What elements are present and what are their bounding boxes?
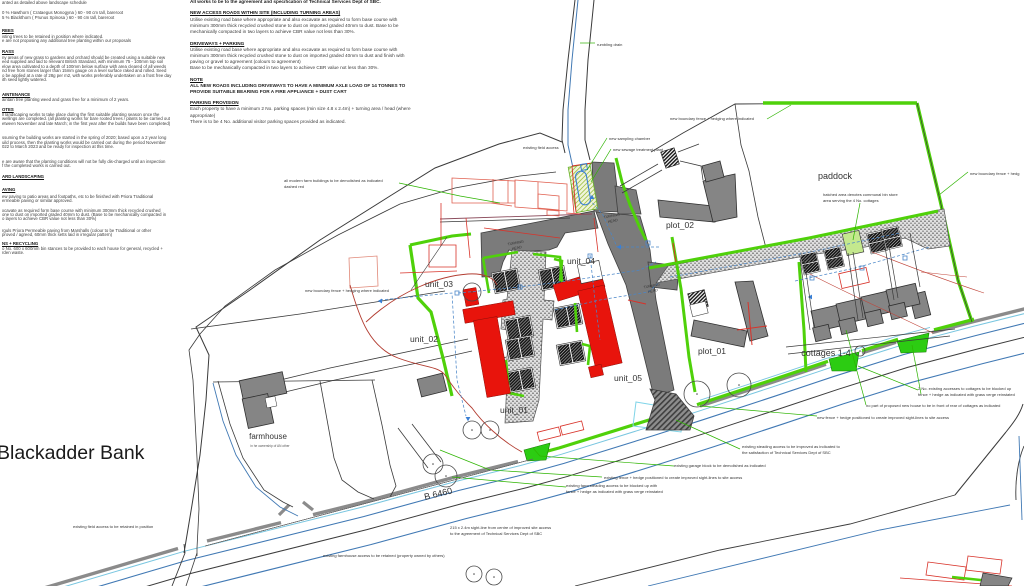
svg-text:area serving the 4 No. cottage: area serving the 4 No. cottages (823, 198, 879, 203)
svg-text:dashed red: dashed red (284, 184, 304, 189)
svg-text:new fence + hedge positioned t: new fence + hedge positioned to create i… (817, 415, 949, 420)
svg-text:new boundary fence + hedging w: new boundary fence + hedging where indic… (670, 116, 754, 121)
svg-text:fence + hedge as indicated wit: fence + hedge as indicated with grass ve… (566, 489, 663, 494)
svg-text:unit_02: unit_02 (410, 334, 438, 344)
svg-text:215 x 2.4m sight-line from cen: 215 x 2.4m sight-line from centre of imp… (450, 525, 551, 530)
svg-text:unit_03: unit_03 (425, 279, 453, 289)
svg-text:new boundary fence + hedg: new boundary fence + hedg (970, 171, 1019, 176)
svg-text:B 6460: B 6460 (423, 486, 453, 502)
svg-text:rumbling drain: rumbling drain (597, 42, 622, 47)
svg-text:the satisfaction of Technical: the satisfaction of Technical Services D… (742, 450, 831, 455)
svg-text:new sampling chamber: new sampling chamber (609, 136, 651, 141)
svg-text:new boundary fence + hedging w: new boundary fence + hedging where indic… (305, 288, 389, 293)
svg-text:paddock: paddock (818, 171, 853, 181)
svg-text:plot_01: plot_01 (698, 346, 726, 356)
svg-text:farmhouse: farmhouse (249, 432, 287, 441)
svg-text:fence + hedge as indicated wit: fence + hedge as indicated with grass ve… (918, 392, 1015, 397)
svg-text:existing garage block to be de: existing garage block to be demolished a… (674, 463, 766, 468)
svg-text:to the agreement of Technical: to the agreement of Technical Services D… (450, 531, 542, 536)
svg-text:Blackadder Bank: Blackadder Bank (0, 442, 145, 464)
svg-text:existing fence + hedge positio: existing fence + hedge positioned to cre… (604, 475, 742, 480)
svg-text:in he ownership of AN other: in he ownership of AN other (250, 444, 290, 448)
svg-text:unit_05: unit_05 (614, 373, 642, 383)
svg-text:hatched area denotes communal: hatched area denotes communal bin store (823, 192, 898, 197)
svg-text:existing field access to be re: existing field access to be retained in … (73, 524, 153, 529)
svg-text:no part of proposed new house: no part of proposed new house to be in f… (866, 403, 1000, 408)
svg-text:2 No. existing accesses to cot: 2 No. existing accesses to cottages to b… (918, 386, 1012, 391)
svg-text:unit_01: unit_01 (500, 405, 528, 415)
svg-text:cottages 1-4: cottages 1-4 (801, 348, 851, 358)
svg-text:unit_04: unit_04 (567, 256, 595, 266)
svg-text:existing field access: existing field access (523, 145, 559, 150)
svg-text:all modern farm buildings to b: all modern farm buildings to be demolish… (284, 178, 383, 183)
svg-text:existing farmhouse access to b: existing farmhouse access to be retained… (323, 553, 445, 558)
svg-text:existing steading access to be: existing steading access to be improved … (742, 444, 841, 449)
svg-text:existing farm steading access: existing farm steading access to be bloc… (566, 483, 657, 488)
svg-text:plot_02: plot_02 (666, 220, 694, 230)
svg-text:new sewage treatment plant: new sewage treatment plant (613, 147, 664, 152)
